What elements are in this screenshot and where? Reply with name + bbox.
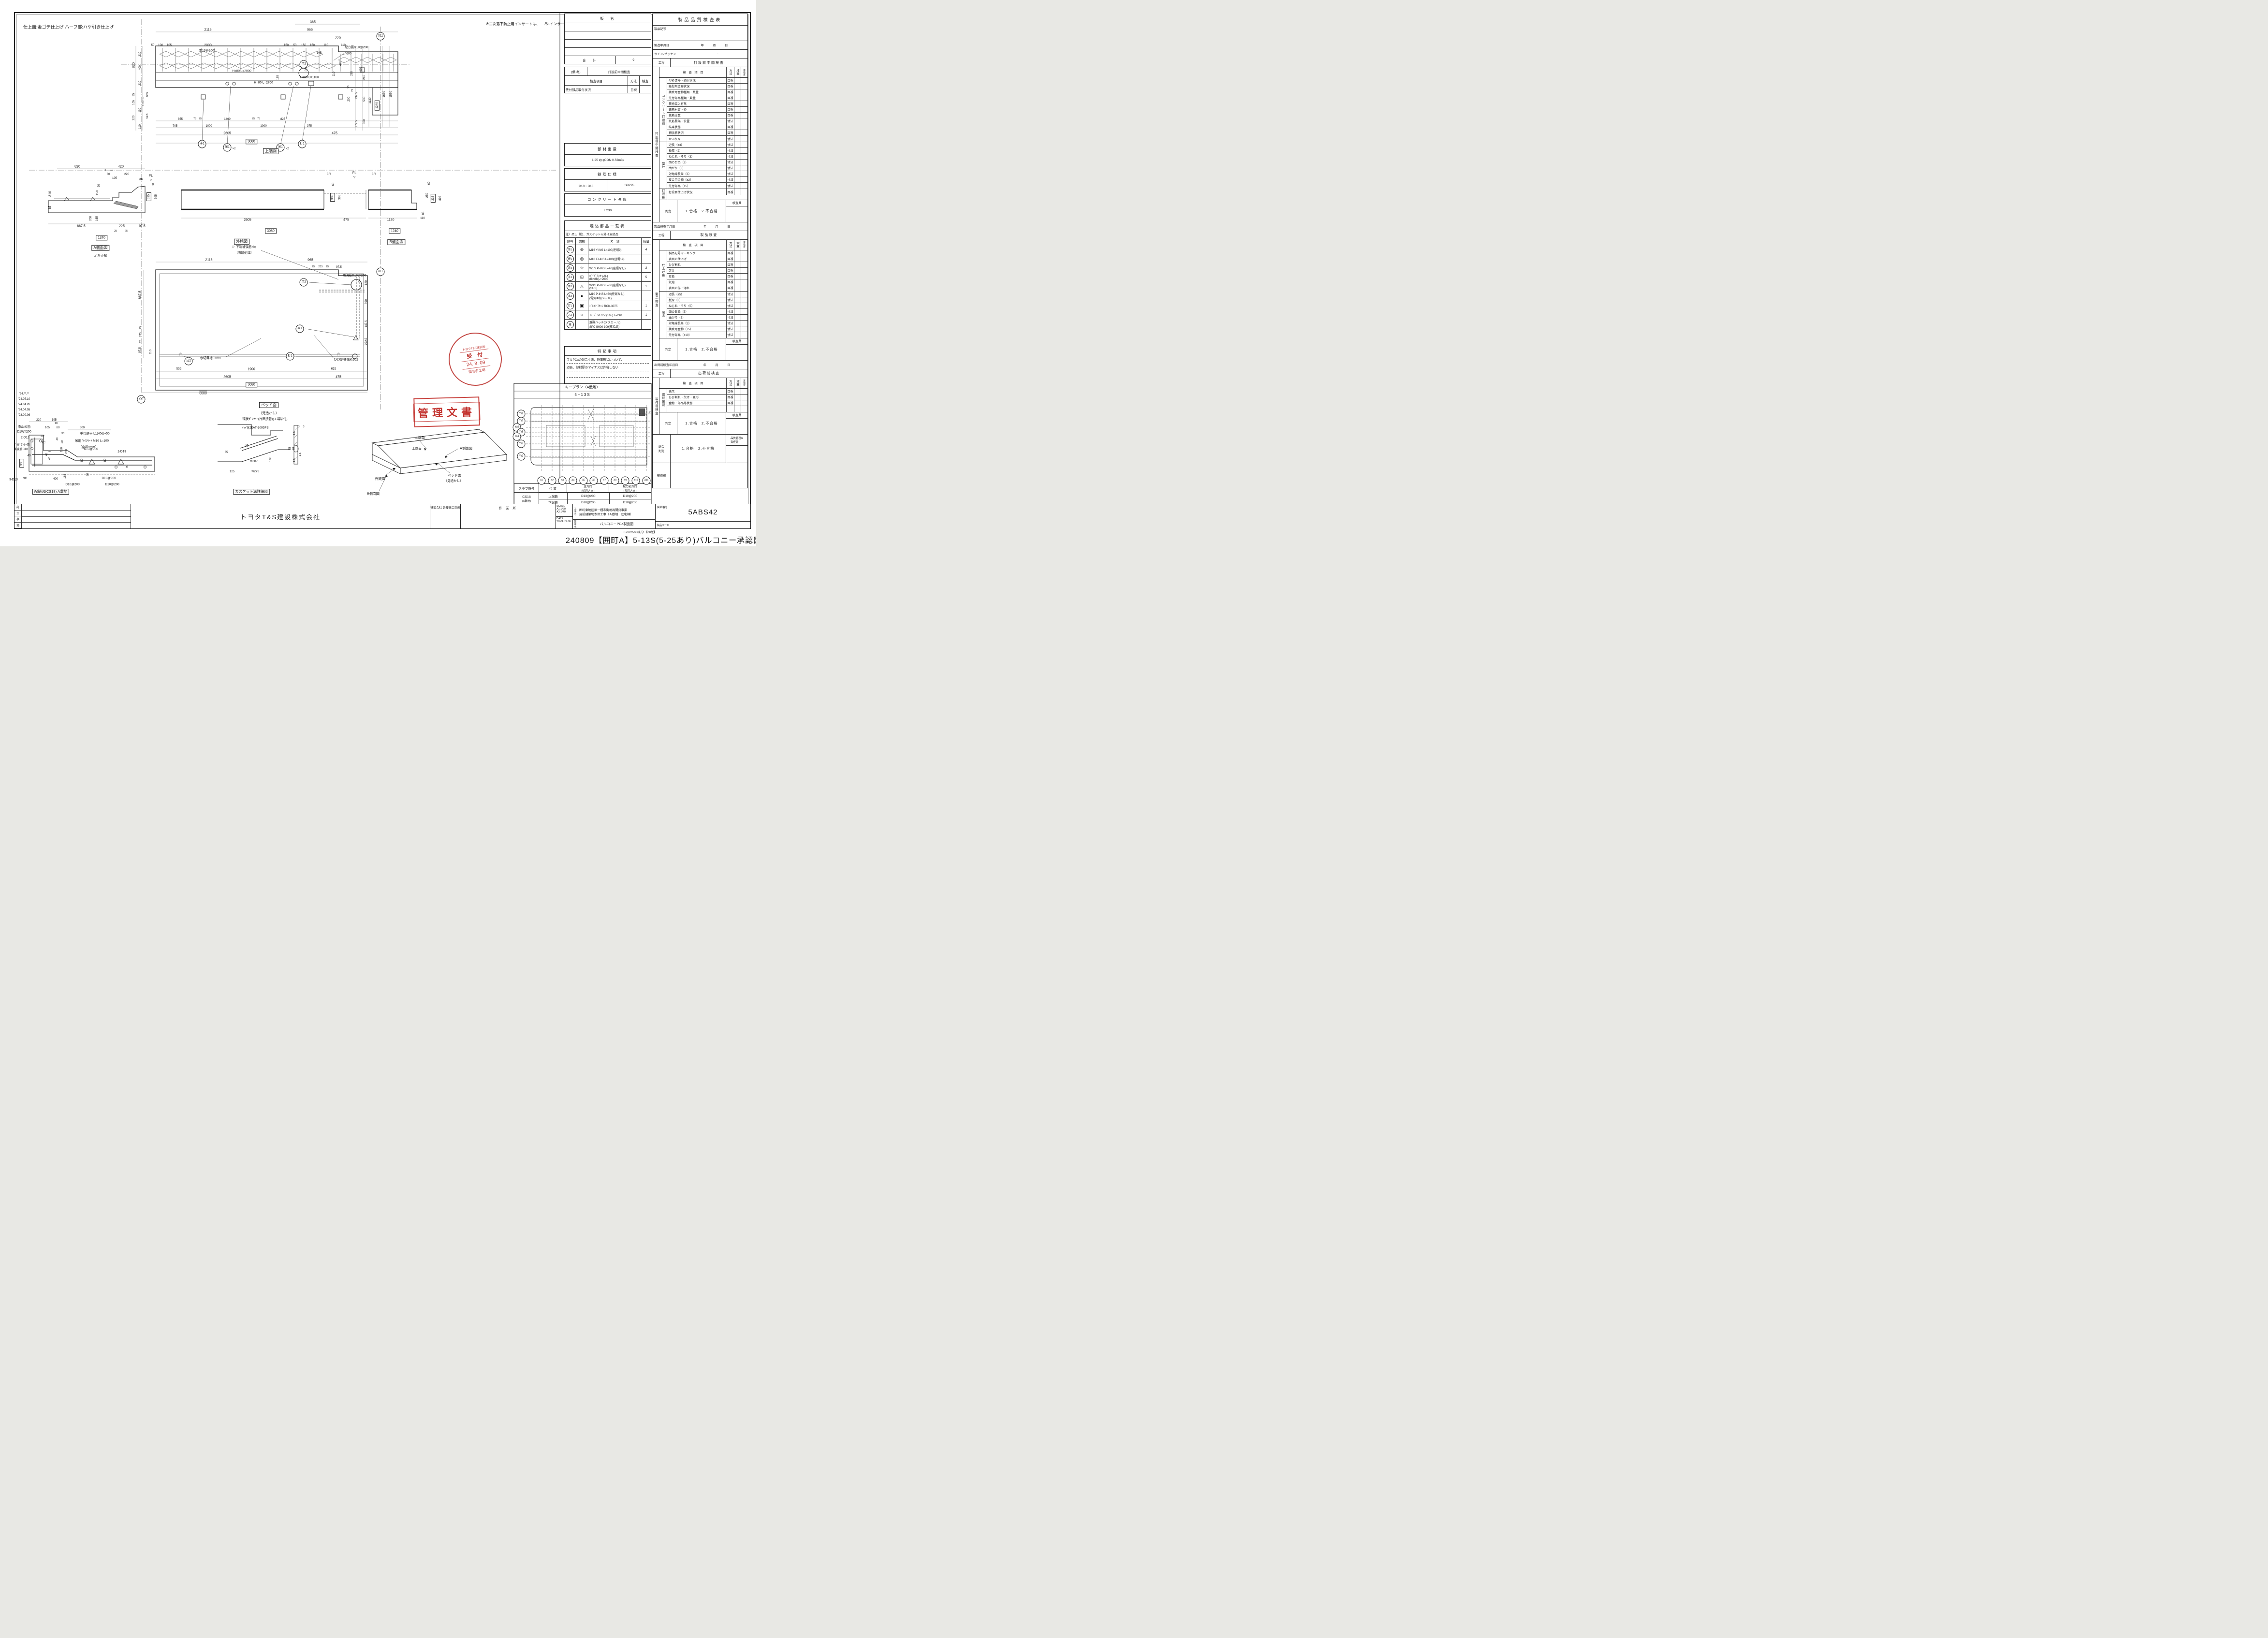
- dim-label: ×2: [233, 147, 236, 150]
- dim-label: 150: [310, 44, 315, 47]
- dim-label: 150: [301, 44, 306, 47]
- inspection-row: 曲がり（5） 寸法: [667, 315, 747, 321]
- mfg-date-row: 製造年月日 年 月 日: [653, 41, 747, 50]
- dim-label: 3: [298, 426, 299, 429]
- dim-label: 20: [61, 440, 64, 443]
- inspection-row: 曲がり（3） 寸法: [667, 165, 747, 171]
- overall-verdict: 総合 判定 1.合格 2.不合格 品質管理G 責任者: [653, 435, 747, 463]
- dim-label: X5: [580, 477, 588, 485]
- slab-h2: 位 置: [539, 484, 567, 492]
- site-office-cell: 作 業 所: [460, 504, 556, 528]
- dim-label: '24.04.26: [18, 403, 30, 406]
- dim-label: 配筋図(CS18) A敷地: [32, 489, 69, 495]
- embedded-header-sym: 記号: [565, 238, 575, 245]
- inspection-row: 豆板 目視: [667, 274, 747, 279]
- dim-label: 97.5: [336, 266, 342, 269]
- dim-label: 25: [246, 444, 249, 448]
- embedded-glyph-icon: ⊕: [575, 245, 588, 254]
- dim-label: 165: [96, 216, 99, 221]
- precheck-remark: (備 考): [565, 67, 587, 75]
- dim-label: 補強筋D10: [14, 448, 28, 451]
- dim-label: 50: [151, 44, 155, 47]
- dim-label: 375: [307, 125, 312, 128]
- dim-label: X8: [611, 477, 619, 485]
- embedded-qty: 1: [641, 282, 651, 291]
- dim-label: （見透かし）: [444, 480, 463, 483]
- inspection-row: 接合用金物（±5） 寸法: [667, 326, 747, 332]
- slab-h3: 主方向 (短辺方向): [567, 484, 609, 492]
- dim-label: 100: [269, 457, 272, 462]
- dim-label: 225: [140, 332, 143, 336]
- embedded-qty: [641, 291, 651, 301]
- dim-label: ▽: [353, 176, 356, 179]
- embedded-name: ﾎﾞｲﾄﾞｱﾝｶｰ(AL) 88×88(L=200): [588, 273, 641, 281]
- dim-label: 2115: [204, 28, 211, 31]
- dim-label: 147.5: [365, 320, 368, 327]
- slab-row: 上端筋 D13@200 D10@200: [539, 493, 651, 499]
- dim-label: 52.5: [146, 114, 149, 119]
- inspection-row: 板厚（2） 寸法: [667, 148, 747, 154]
- dim-label: D10@200: [17, 431, 31, 434]
- repair-box: 補修欄: [653, 463, 747, 488]
- dim-label: 1130: [369, 98, 372, 104]
- dim-label: 400: [139, 65, 142, 70]
- embedded-qty: [641, 254, 651, 263]
- dim-label: L=600: [343, 53, 351, 56]
- dim-label: 外観図: [234, 239, 249, 245]
- precheck-item-header: 検査項目: [565, 76, 628, 85]
- dim-label: ﾎﾞｲﾄﾞｱﾝｶｰ用: [14, 444, 29, 447]
- dim-label: 475: [332, 132, 337, 135]
- dim-label: D10@200: [105, 483, 119, 487]
- dim-label: D10@200: [65, 483, 79, 487]
- dim-label: 150: [284, 44, 289, 47]
- board-name-table: 板 名: [564, 14, 651, 64]
- dim-label: '24.04.05: [18, 409, 30, 411]
- embedded-note: 注）吊1、脱1、ガスケット以外は支給品: [565, 231, 651, 237]
- dim-label: '24.**.**: [19, 393, 29, 395]
- dim-label: 60: [152, 183, 155, 187]
- dim-label: 335: [330, 193, 335, 202]
- board-row: [565, 47, 651, 56]
- dim-label: 3R: [372, 173, 376, 176]
- dim-label: 9C: [42, 441, 45, 444]
- section-date-row: 製品検査年月日 年 月 日: [653, 222, 747, 231]
- embedded-row: 足2 ☆ W1/2 P-INS L=40(座堀なし) 2: [565, 263, 651, 272]
- revision-mark: 訂: [15, 504, 21, 511]
- dim-label: 1240: [96, 235, 107, 240]
- embedded-glyph-icon: [575, 320, 588, 329]
- dim-label: 475: [343, 218, 349, 221]
- dim-label: 335: [19, 459, 24, 468]
- line-row: ライン-ゼッケン -: [653, 50, 747, 58]
- dim-label: 50: [87, 473, 89, 477]
- finish-note: 仕上面:金ゴテ仕上げ ハーフ部:ハケ引き仕上げ: [23, 24, 114, 31]
- dim-label: B側面図: [387, 239, 405, 245]
- dim-label: 395: [439, 196, 442, 201]
- dim-label: 737.5: [355, 92, 358, 99]
- embedded-qty: 5: [641, 273, 651, 281]
- dim-label: 1000: [260, 125, 266, 128]
- dim-label: 110: [149, 350, 152, 354]
- dim-label: 220: [335, 36, 341, 40]
- dim-label: ベッド面: [259, 402, 278, 408]
- dim-label: 110: [139, 124, 142, 129]
- dim-label: 60: [428, 182, 431, 185]
- inspection-row: 先付部品（±10） 寸法: [667, 332, 747, 338]
- dim-label: 335: [431, 194, 436, 203]
- dim-label: 2605: [223, 132, 231, 135]
- dim-label: 22: [293, 447, 295, 451]
- inspection-row: 金物・部品等状態 目視: [667, 400, 747, 406]
- weight-table: 部材重量 1.25 t/p (CON:0.52m3): [564, 143, 651, 166]
- dim-label: A側面図: [91, 245, 109, 251]
- dim-label: 150: [60, 447, 63, 452]
- dim-label: 395: [338, 195, 341, 200]
- dim-label: 85: [49, 206, 52, 209]
- dim-label: D13@200: [84, 448, 98, 452]
- inspection-row: 対角線長差（3） 寸法: [667, 171, 747, 177]
- embedded-sym: 打1: [565, 301, 575, 310]
- embedded-qty: 1: [641, 310, 651, 319]
- dim-label: 75: [252, 118, 255, 121]
- embedded-sym: ス2: [565, 310, 575, 319]
- dim-label: 555: [176, 368, 182, 371]
- embedded-sym: 本1: [565, 282, 575, 291]
- inspection-section: 工程 打設前中間検査 打設前中間検査 検 査 項 目 方法 検査 再検査: [653, 58, 747, 222]
- inspection-row: 辺長（±5） 寸法: [667, 292, 747, 297]
- concrete-table: コンクリート強度 FC30: [564, 193, 651, 217]
- board-row: [565, 31, 651, 39]
- dim-label: 3080: [265, 228, 277, 234]
- verdict-row: 判定 1.合格 2.不合格 検査員: [659, 338, 747, 360]
- dim-label: 80: [104, 459, 107, 462]
- dim-label: X2: [548, 477, 556, 485]
- embedded-sym: 仮1: [565, 254, 575, 263]
- dim-label: 10: [142, 97, 145, 100]
- drawing-number-cell: 図面番号 5ABS42 製品コード: [655, 504, 750, 528]
- embedded-row: 本1 △ W3/8 P-INS L=30(座堀なし) (SUS) 1: [565, 281, 651, 291]
- inspection-group: 仕上げ後 製品記号マーキング 目視: [659, 250, 747, 292]
- embedded-row: 仮1 ◎ M16 ロ-INS L=100(座堀19): [565, 254, 651, 263]
- dim-label: 360: [363, 119, 366, 124]
- inspection-row: 先付部品種類・数量 目視: [667, 95, 747, 101]
- slab-rows: 上端筋 D13@200 D10@200 下端筋 D10@200 D10@200: [539, 493, 651, 505]
- dim-label: 210: [139, 52, 142, 57]
- dim-label: Ya3: [517, 440, 526, 448]
- precheck-method-header: 方法: [628, 76, 639, 85]
- dim-label: 2000: [204, 44, 212, 47]
- inspection-group: 型枠 辺長（±3） 寸法: [659, 142, 747, 189]
- board-total-label: 合 計: [565, 56, 615, 64]
- dim-label: 25: [140, 340, 143, 343]
- remarks-line2: 辺長、部材厚のマイナスは許容しない: [567, 364, 649, 371]
- section-side-label: 打設前中間検査: [653, 67, 659, 222]
- embedded-header-fig: 図形: [575, 238, 588, 245]
- section-side-label: 出荷前検査: [653, 378, 659, 434]
- dim-label: 40: [46, 453, 49, 456]
- dim-label: 9C: [23, 477, 27, 480]
- dim-label: 補強筋D10@200: [343, 275, 366, 278]
- dim-label: 75: [193, 118, 196, 121]
- dim-label: 1.5: [299, 453, 302, 456]
- inspection-row: 打設面仕上げ状況 目視: [667, 189, 747, 195]
- dim-label: 105: [112, 177, 117, 180]
- remarks-table: 特記事項 フルPCaの製品寸法、断面形状について、 辺長、部材厚のマイナスは許容…: [564, 346, 651, 384]
- dim-label: Ya7: [137, 395, 146, 404]
- dim-label: 52.5: [146, 92, 149, 98]
- weight-value: 1.25 t/p (CON:0.52m3): [565, 155, 651, 166]
- dim-label: 475: [336, 375, 341, 379]
- dim-label: ≒279: [251, 470, 259, 474]
- inspection-row: 対角線長差（5） 寸法: [667, 321, 747, 326]
- dim-label: 本1: [296, 325, 304, 333]
- dim-label: 10: [55, 423, 58, 425]
- dim-label: 240: [363, 75, 366, 80]
- embedded-row: 打1 ▣ ﾄﾞﾚｲﾝ ﾌｸﾆｼ RCK-3075 1: [565, 301, 651, 310]
- dim-label: 855: [178, 118, 183, 121]
- dim-label: 705: [173, 125, 177, 128]
- embedded-sym: 本2: [565, 291, 575, 301]
- dim-label: 600: [80, 426, 85, 429]
- inspection-row: 離型剤塗布状況 目視: [667, 84, 747, 89]
- dim-label: 105: [317, 52, 322, 55]
- inspection-row: 接合用金物（±2） 寸法: [667, 177, 747, 183]
- dim-label: 200: [348, 97, 351, 102]
- inspection-row: 型枠清掃・組付状況 目視: [667, 78, 747, 84]
- dim-label: 225: [119, 224, 125, 228]
- slab-code: CS18(A敷地): [514, 493, 539, 505]
- dim-label: 1400: [224, 118, 230, 121]
- dim-label: 220: [132, 116, 135, 120]
- rebar-grade: SD295: [608, 180, 651, 191]
- inspection-row: ひび割れ 目視: [667, 262, 747, 268]
- slab-h4: 配力筋方向 (長辺方向): [609, 484, 651, 492]
- dim-label: 20: [98, 184, 101, 188]
- dim-label: 50: [293, 44, 297, 47]
- dim-label: 水切目地 25×9: [200, 357, 220, 361]
- dim-label: 1.5: [293, 458, 296, 462]
- dim-label: 75: [199, 118, 202, 121]
- dim-label: 335: [146, 192, 151, 201]
- dim-label: 250: [426, 193, 429, 198]
- dim-label: ☆: [337, 352, 340, 356]
- dim-label: 395: [155, 194, 158, 199]
- dim-label: 210: [139, 81, 142, 86]
- precheck-table: (備 考) 打設前中間検査 検査項目 方法 検査 先付部品取付状況 目視: [564, 67, 651, 93]
- dim-label: 420: [118, 165, 124, 168]
- inspection-row: [667, 406, 747, 412]
- builder-name: トヨタT&S建設株式会社: [131, 504, 430, 528]
- embedded-sym: 足2: [565, 263, 575, 272]
- dim-label: X11: [377, 268, 385, 276]
- dim-label: 310: [48, 191, 52, 197]
- dim-label: 30: [61, 433, 64, 436]
- board-rows: [565, 23, 651, 56]
- dim-label: 1130: [387, 218, 394, 221]
- dim-label: 上端面: [415, 436, 425, 439]
- dim-label: 6000: [199, 391, 207, 395]
- precheck-check-header: 検査: [639, 76, 651, 85]
- dim-label: 420: [339, 61, 342, 66]
- precheck-row-method: 目視: [628, 86, 639, 93]
- dim-label: 105: [45, 426, 50, 429]
- inspection-row: 面の凹凸（3） 寸法: [667, 160, 747, 165]
- inspection-row: 面の凹凸（5） 寸法: [667, 309, 747, 315]
- section-date-row: 出荷前検査年月日 年 月 日: [653, 361, 747, 369]
- dim-label: 1-D13: [117, 451, 126, 454]
- board-total-value: 9: [615, 56, 651, 64]
- dim-label: X11: [377, 32, 385, 41]
- dim-label: 3080: [246, 382, 257, 387]
- product-code-row: 製品記号: [653, 26, 747, 41]
- scale-date-cell: SCALEA1:1/20A3:1/40 DATE2023.09.06: [556, 504, 572, 528]
- dim-label: FL: [149, 174, 153, 177]
- dim-label: 220: [36, 419, 41, 422]
- dim-label: 85: [126, 465, 129, 468]
- col-header-row: 検 査 項 目 方法 検査 再検査: [659, 240, 747, 250]
- dim-label: Ya2: [517, 453, 526, 461]
- dim-label: 上端図: [263, 148, 278, 154]
- dim-label: ガスケット溝詳細図: [233, 489, 270, 495]
- embedded-qty: 4: [641, 245, 651, 254]
- dim-label: X9: [621, 477, 629, 485]
- embedded-name: 避難ハッチ(タスカール) SPC Ⅲ600-109(支給品): [588, 320, 641, 329]
- dim-label: D10@200: [102, 477, 116, 481]
- dim-label: 820: [74, 165, 80, 168]
- concrete-value: FC30: [565, 205, 651, 216]
- dim-label: 3-D13: [9, 479, 18, 482]
- inspection-row: 先付部品（±5） 寸法: [667, 183, 747, 189]
- dim-label: 75: [351, 89, 354, 92]
- embedded-name: W3/8 P-INS L=30(座堀なし) (SUS): [588, 282, 641, 291]
- dim-label: 5: [142, 105, 145, 106]
- dim-label: 3: [303, 426, 304, 429]
- dim-label: ｲｹｲ化成AT-2095FS: [242, 427, 268, 430]
- dim-label: 60: [332, 183, 335, 186]
- dim-label: 5: [104, 169, 106, 172]
- dim-label: 3080: [246, 139, 257, 144]
- slab-table: スラブ符号 位 置 主方向 (短辺方向) 配力筋方向 (長辺方向) CS18(A…: [514, 483, 651, 506]
- revision-marks: 訂正事項: [15, 504, 22, 528]
- dim-label: 220: [124, 173, 129, 176]
- dim-label: 272.5: [365, 337, 368, 345]
- keyplan-floors: 5~13S: [574, 393, 590, 397]
- embedded-name: M16 ロ-INS L=100(座堀19): [588, 254, 641, 263]
- dim-label: 25: [125, 230, 128, 233]
- dim-label: 2605: [244, 218, 251, 221]
- dim-label: 40: [28, 454, 31, 457]
- dim-label: 208: [65, 449, 68, 454]
- remarks-title: 特記事項: [565, 347, 651, 355]
- dim-label: 外観面: [375, 477, 385, 481]
- dim-label: 1900: [248, 367, 255, 371]
- inspection-row: 接合用金物種類・数量 目視: [667, 89, 747, 95]
- dim-label: 25: [289, 447, 292, 451]
- dim-label: 25: [140, 326, 143, 329]
- weight-title: 部材重量: [565, 144, 651, 154]
- col-header-row: 検 査 項 目 方法 検査 再検査: [659, 378, 747, 389]
- dim-label: X1: [538, 477, 546, 485]
- inspection-row: 表面の傷・汚れ 目視: [667, 285, 747, 291]
- embedded-header-qty: 数量: [641, 238, 651, 245]
- inspection-group: コンクリート打設前 型枠清掃・組付状況 目視: [659, 78, 747, 142]
- inspection-group: 製品 辺長（±5） 寸法: [659, 292, 747, 338]
- dim-label: ☆: [178, 352, 182, 356]
- dim-label: 110: [333, 72, 336, 76]
- embedded-glyph-icon: △: [575, 282, 588, 291]
- dim-label: 80: [107, 173, 110, 176]
- dim-label: 120: [360, 67, 363, 72]
- dim-label: 105: [132, 100, 135, 105]
- embedded-glyph-icon: ☆: [575, 263, 588, 272]
- embedded-sym: 避: [565, 320, 575, 329]
- embedded-glyph-icon: ●: [575, 291, 588, 301]
- dim-label: FL: [352, 171, 356, 175]
- embedded-row: 避 避難ハッチ(タスカール) SPC Ⅲ600-109(支給品): [565, 319, 651, 329]
- dim-label: 25: [326, 266, 329, 269]
- dim-label: 215: [318, 266, 322, 269]
- process-row: 工程 製品検査: [653, 231, 747, 240]
- inspection-group: 打設後 打設面仕上げ状況 目視: [659, 189, 747, 200]
- dim-label: 195: [52, 419, 57, 422]
- dim-label: 965: [307, 258, 313, 262]
- dim-label: '23.09.06: [18, 414, 30, 417]
- dim-label: 965: [307, 28, 313, 31]
- revision-mark: 事: [15, 516, 21, 523]
- embedded-name: M10 P-INS L=30(座堀なし) (電気亜鉛メッキ): [588, 291, 641, 301]
- dim-label: 打1: [286, 352, 294, 361]
- title-block: 訂正事項 トヨタT&S建設株式会社 株式会社 佐藤総合計画 作 業 所 SCAL…: [15, 504, 750, 528]
- dim-label: 3R: [139, 178, 143, 182]
- embedded-name: M16 Y-INS L=100(座堀9): [588, 245, 641, 254]
- dim-label: 巾止め筋: [18, 426, 30, 429]
- sheet-caption: 240809【囲町A】5-13S(5-25あり)バルコニー承認図: [566, 534, 756, 545]
- dim-label: 280: [351, 71, 353, 76]
- dim-label: ▽: [150, 179, 152, 182]
- rebar-size: D10・D13: [565, 180, 608, 191]
- slab-h1: スラブ符号: [514, 484, 539, 492]
- embedded-qty: [641, 320, 651, 329]
- dim-label: 75: [348, 86, 351, 88]
- dim-label: 1000: [205, 125, 212, 128]
- dim-label: 80: [81, 459, 84, 462]
- dim-label: 手1: [198, 140, 206, 148]
- rebar-spec-table: 鉄筋仕様 D10・D13 SD295: [564, 168, 651, 191]
- dim-label: ひび割補強筋D13: [334, 359, 359, 362]
- dim-label: H=80 L=1100: [300, 76, 319, 80]
- verdict-row: 判定 1.合格 2.不合格 検査員: [659, 200, 747, 222]
- dim-label: 3R: [41, 435, 44, 438]
- dim-label: 867.5: [138, 291, 142, 299]
- inspection-section: 製品検査年月日 年 月 日 工程 製品検査 製品検査 検 査 項 目 方法: [653, 222, 747, 361]
- dim-label: X7: [600, 477, 609, 485]
- dim-label: 825: [280, 118, 285, 121]
- inspection-row: 気泡 目視: [667, 279, 747, 285]
- inspection-row: 表面の仕上げ 目視: [667, 256, 747, 262]
- board-table-title: 板 名: [565, 14, 651, 23]
- embedded-sym: 手1: [565, 273, 575, 281]
- col-header-row: 検 査 項 目 方法 検査 再検査: [659, 67, 747, 78]
- dim-label: ス2: [300, 60, 308, 69]
- inspection-row: 板厚（3） 寸法: [667, 297, 747, 303]
- dim-label: 867.5: [77, 224, 86, 228]
- dim-label: ◁: [648, 410, 651, 414]
- dim-label: 環状ｶﾞｽｹｯﾄ(片面接着)(工場貼付): [242, 418, 287, 422]
- dim-label: 1.5: [293, 431, 296, 435]
- dim-label: 110: [420, 217, 425, 220]
- dim-label: 2115: [205, 258, 212, 262]
